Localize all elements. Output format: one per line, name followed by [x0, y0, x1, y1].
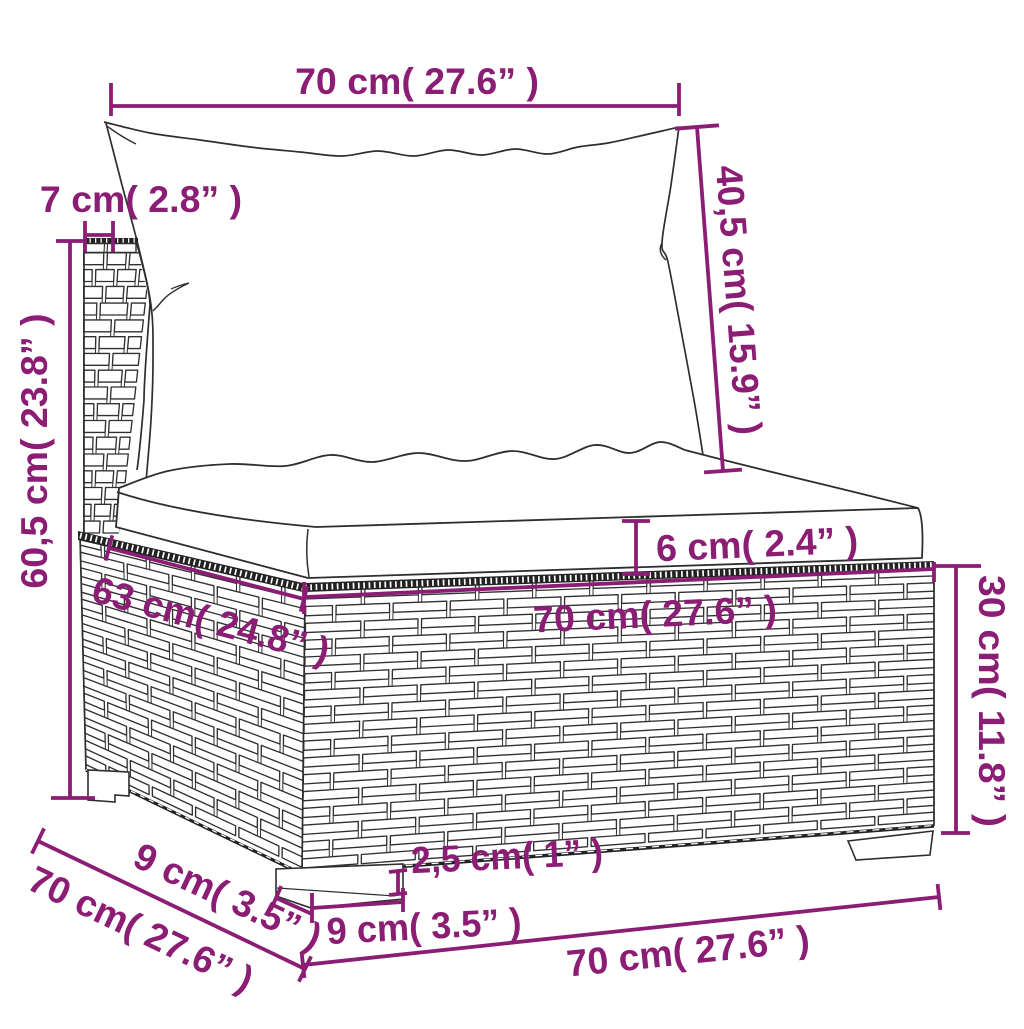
svg-text:6 cm( 2.4” ): 6 cm( 2.4” ) — [655, 519, 859, 570]
svg-text:60,5 cm( 23.8” ): 60,5 cm( 23.8” ) — [13, 313, 55, 588]
svg-text:30 cm( 11.8” ): 30 cm( 11.8” ) — [971, 575, 1013, 827]
svg-text:7 cm( 2.8” ): 7 cm( 2.8” ) — [40, 178, 242, 220]
svg-text:70 cm( 27.6” ): 70 cm( 27.6” ) — [295, 60, 539, 102]
svg-text:2,5 cm( 1” ): 2,5 cm( 1” ) — [410, 831, 604, 881]
